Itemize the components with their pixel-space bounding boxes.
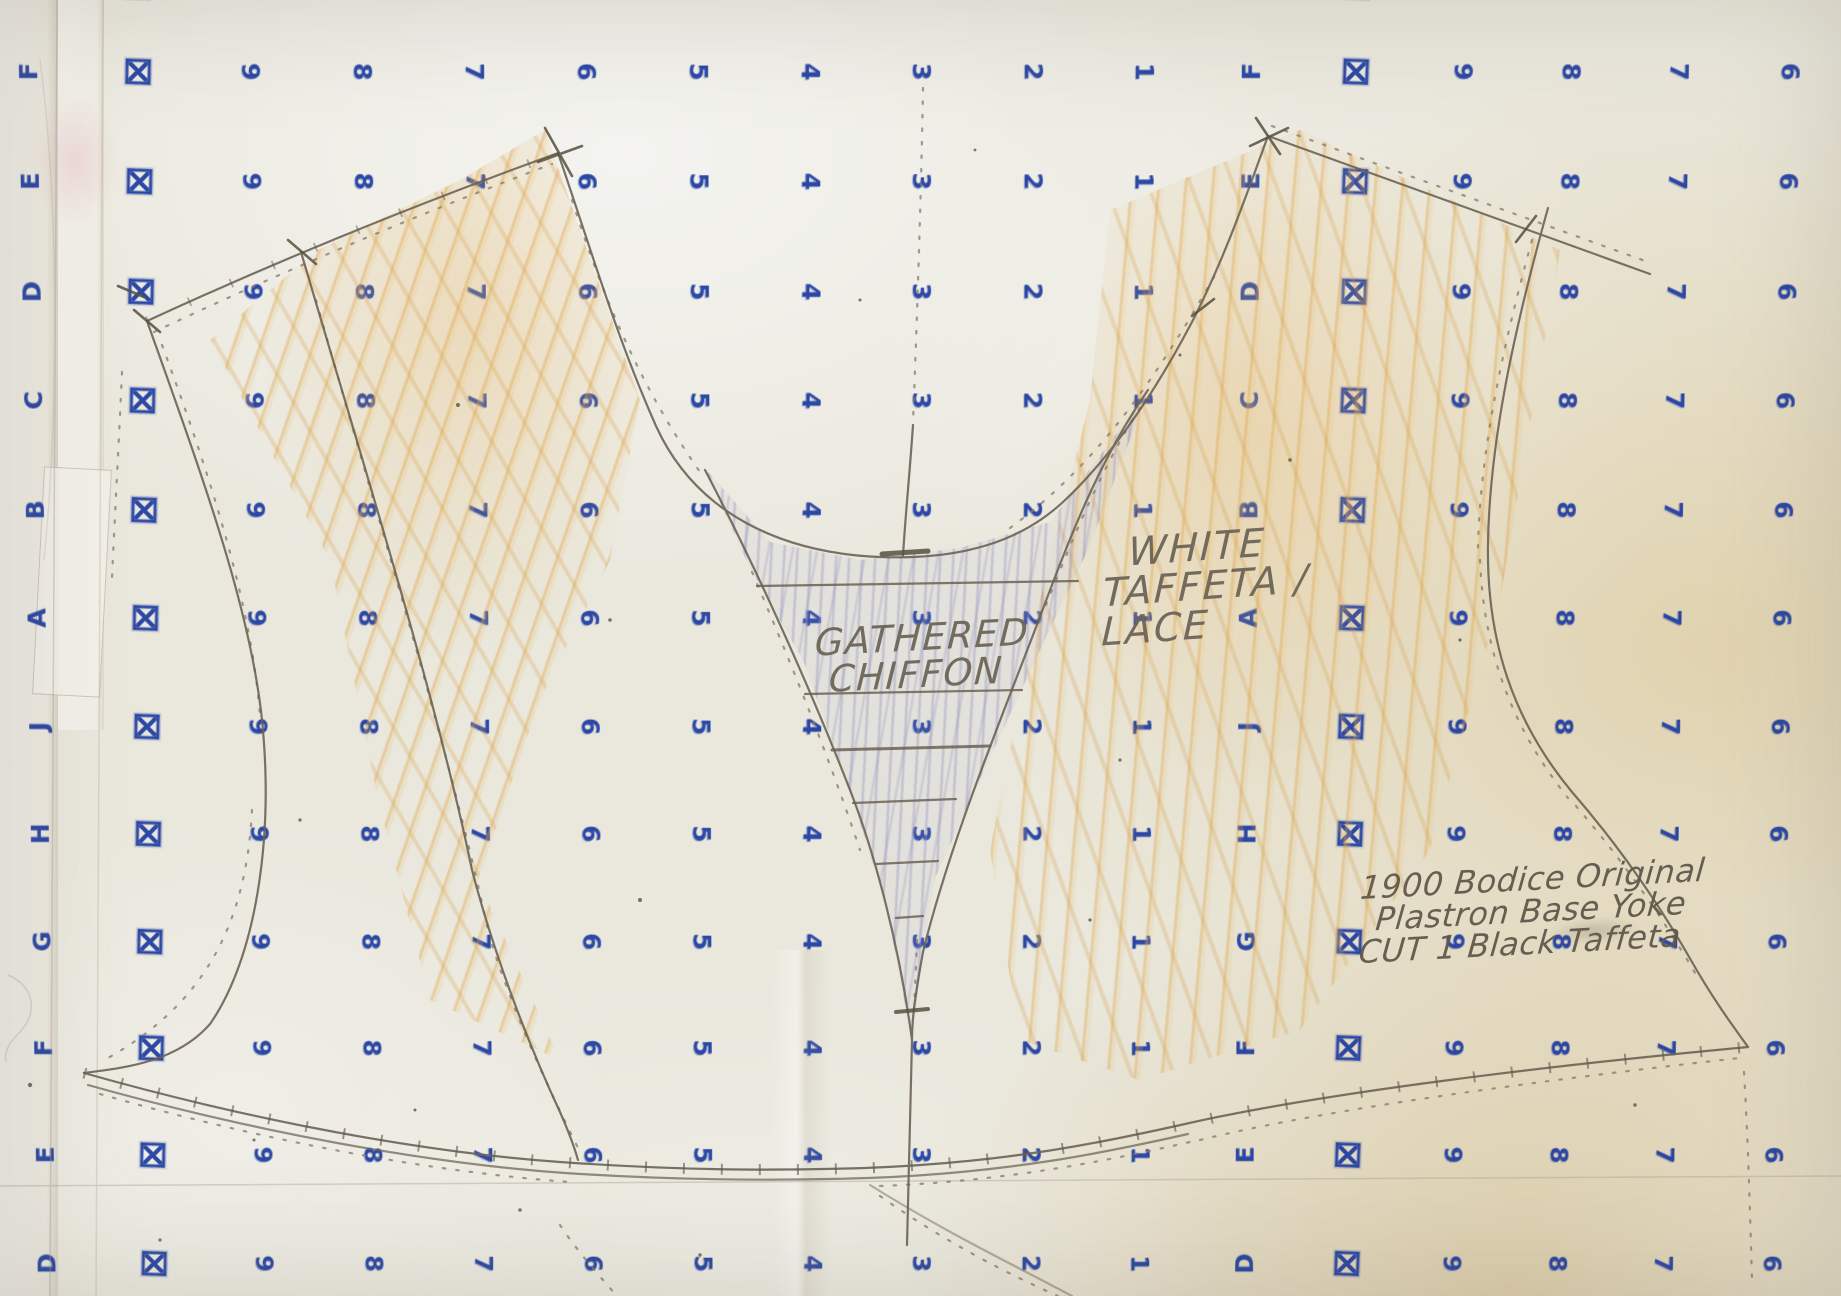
annotation-white-taffeta-lace: WHITE TAFFETA / LACE (1101, 512, 1311, 644)
annotation-pattern-title: 1900 Bodice Original Plastron Base Yoke … (1354, 847, 1707, 962)
left-shoulder-seam (147, 153, 558, 321)
center-front-lower (907, 1040, 912, 1245)
tick-marks (118, 118, 1536, 1012)
paper-specks (28, 149, 1637, 1257)
right-shoulder-seam (1268, 136, 1650, 274)
center-front-line (903, 425, 913, 556)
pattern-outline-lines (84, 136, 1748, 1296)
bottom-diagonal (870, 1185, 1072, 1296)
neckline-curve (558, 136, 1268, 557)
waist-seam (84, 1047, 1748, 1170)
pattern-paper-photo: G987654321G9876F987654321F9876E987654321… (0, 0, 1841, 1296)
plastron-right-edge (912, 390, 1148, 1040)
annotation-gathered-chiffon: GATHERED CHIFFON (812, 609, 1030, 695)
left-armhole-curve (84, 321, 266, 1073)
princess-seam-curve (301, 252, 578, 1160)
